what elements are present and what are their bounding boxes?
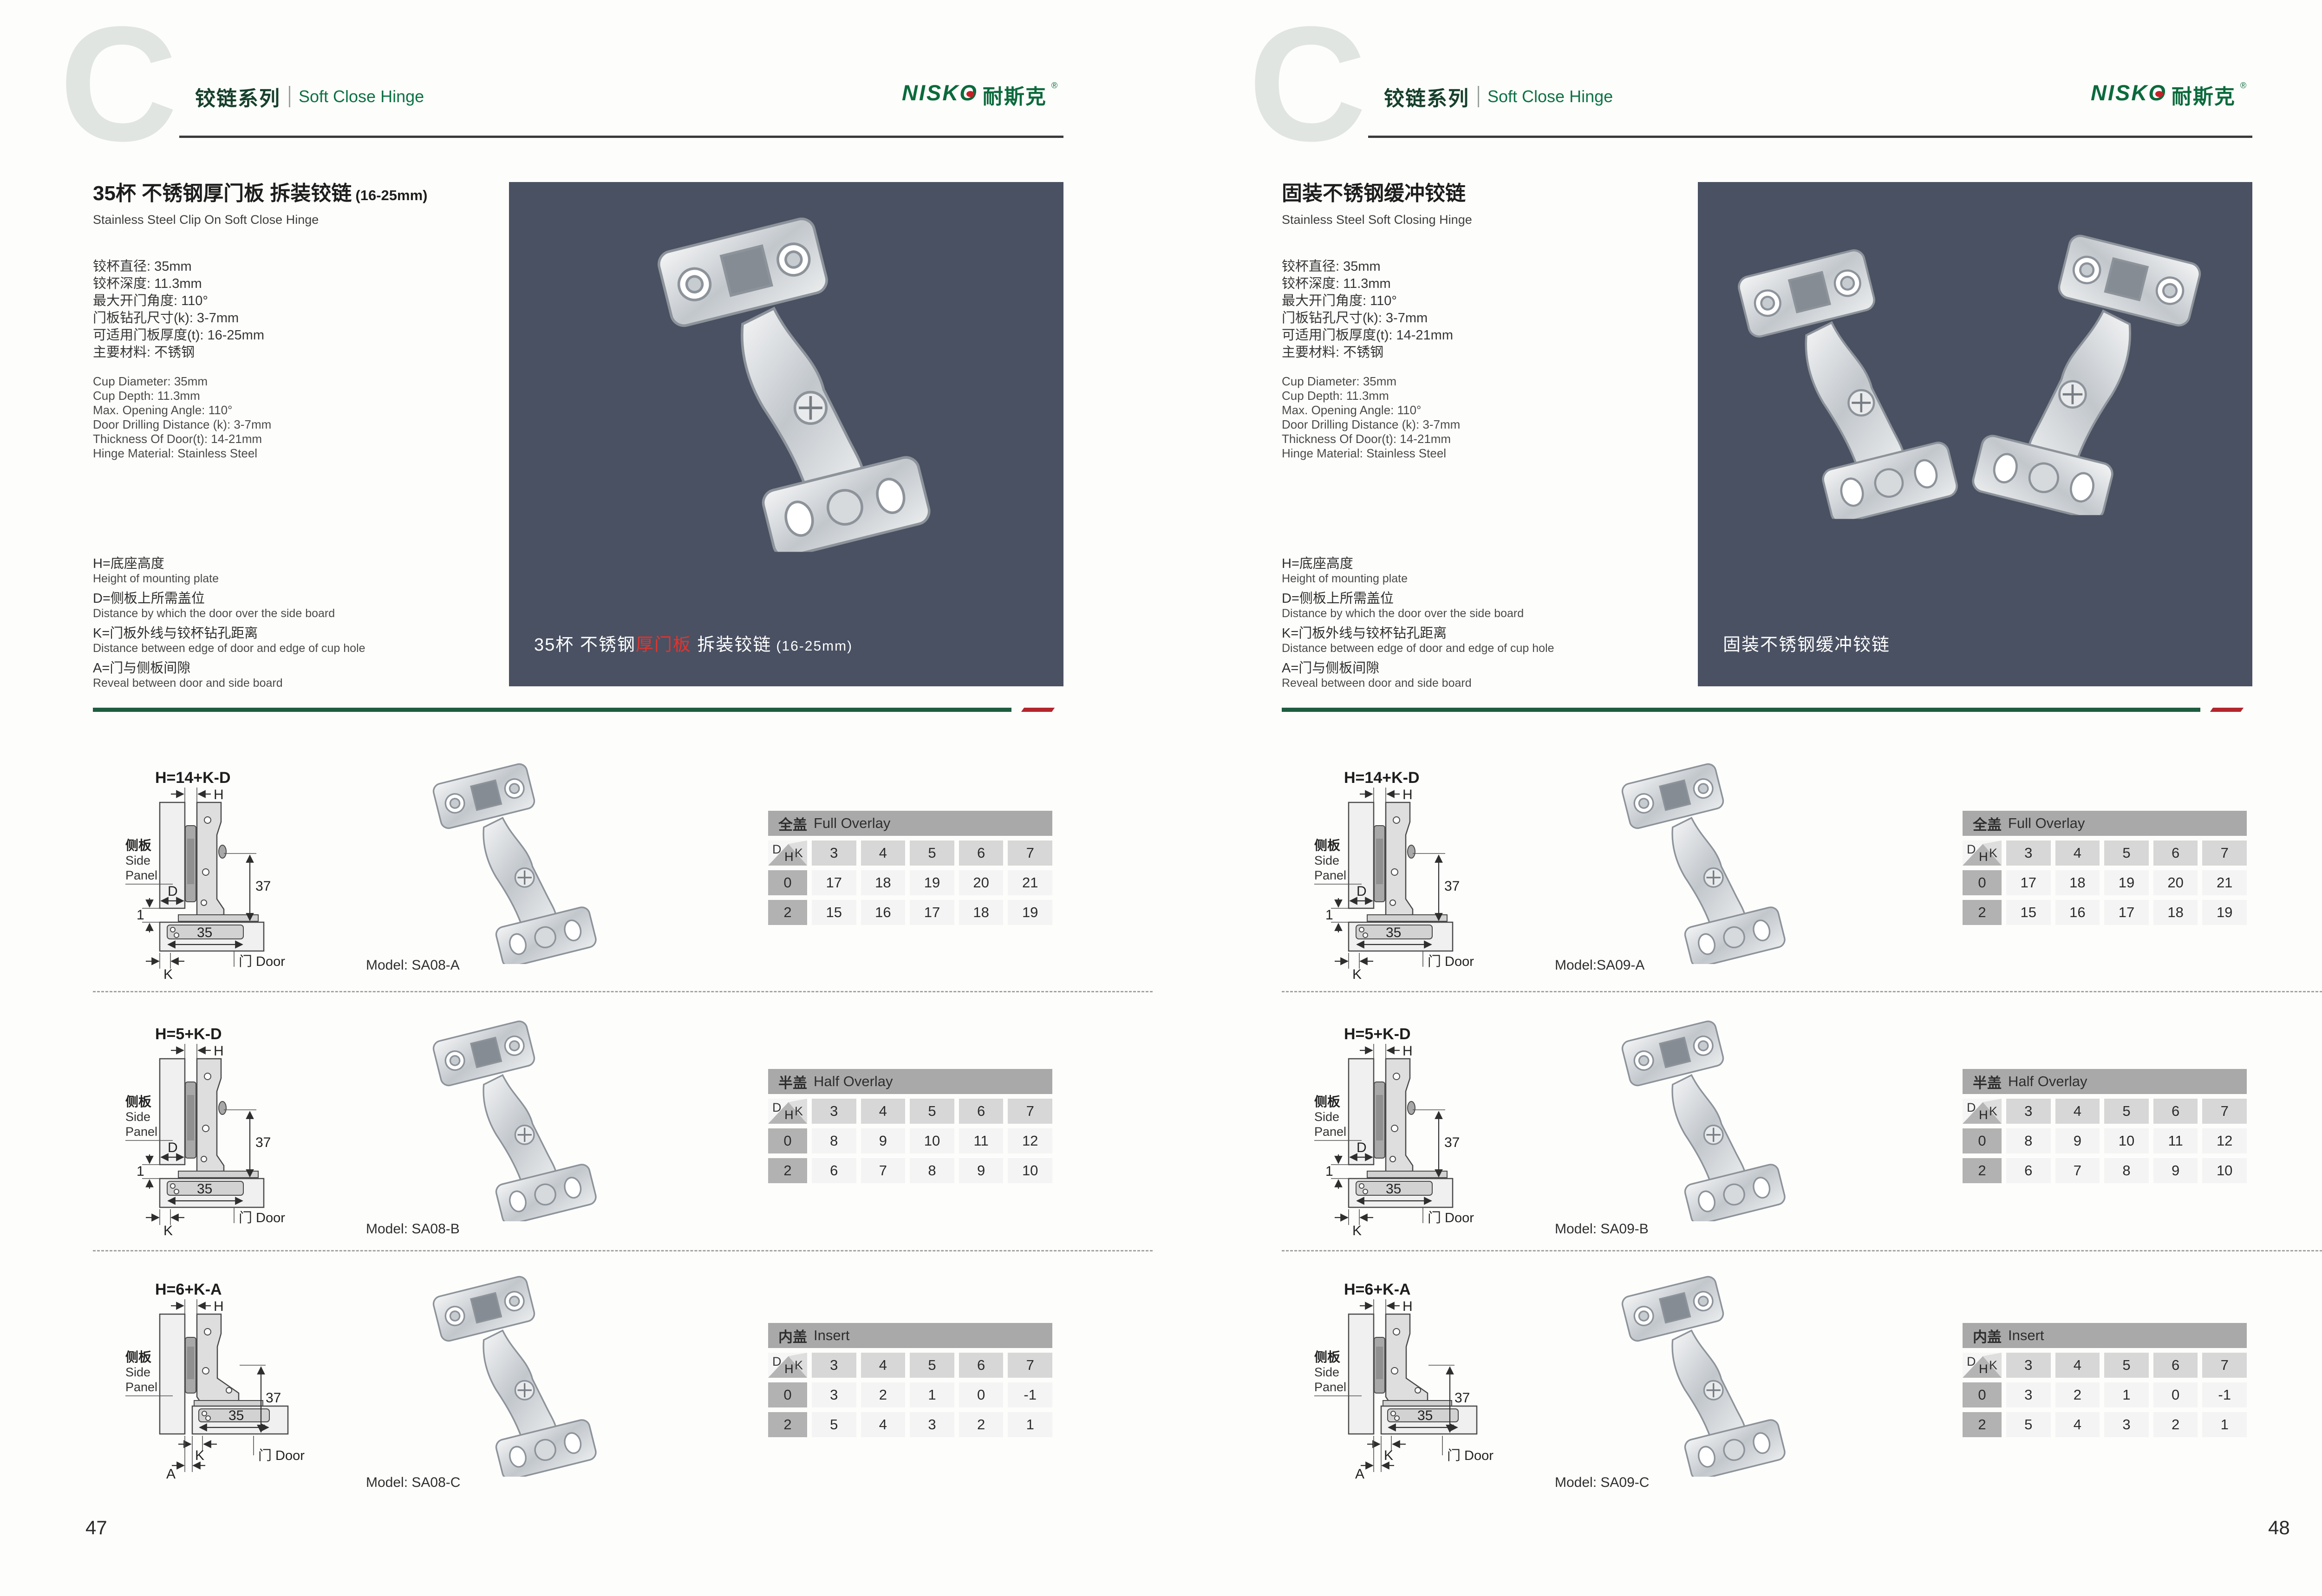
page-number: 47 [85, 1517, 107, 1539]
diagram-half-overlay: H=5+K-D [1312, 1018, 1572, 1241]
product-subtitle: Stainless Steel Clip On Soft Close Hinge [93, 213, 319, 227]
table-cell: 10 [1008, 1158, 1052, 1183]
table-col-header: 6 [2153, 1353, 2198, 1378]
specs-cn: 铰杯直径: 35mm铰杯深度: 11.3mm 最大开门角度: 110°门板钻孔尺… [1282, 258, 1453, 361]
diagram-formula: H=6+K-A [1344, 1281, 1411, 1298]
table-col-header: 5 [2104, 1099, 2149, 1124]
table-grid: DKH345670171819202121516171819 [1963, 840, 2247, 925]
table-row-header: 2 [1963, 1412, 2002, 1437]
table-cell: 7 [861, 1158, 906, 1183]
row-separator [93, 991, 1153, 992]
table-cell: 6 [2006, 1158, 2051, 1183]
hinge-photo-large [1967, 228, 2209, 516]
table-row-header: 0 [768, 1382, 807, 1407]
model-label: Model: SA08-A [366, 958, 460, 973]
table-col-header: 6 [2153, 1099, 2198, 1124]
table-cell: 17 [2104, 900, 2149, 925]
table-cell: 10 [2104, 1128, 2149, 1153]
table-title: 内盖Insert [768, 1323, 1052, 1348]
table-cell: 1 [2202, 1412, 2247, 1437]
table-cell: 9 [2153, 1158, 2198, 1183]
table-cell: 19 [2202, 900, 2247, 925]
series-title-en: Soft Close Hinge [1487, 87, 1613, 106]
table-cell: 20 [959, 870, 1004, 895]
table-cell: 21 [1008, 870, 1052, 895]
table-cell: 10 [2202, 1158, 2247, 1183]
brand-logo-cn: 耐斯克 [2172, 80, 2236, 110]
model-label: Model: SA09-B [1555, 1221, 1649, 1237]
table-cell: 18 [2055, 870, 2100, 895]
table-cell: 16 [861, 900, 906, 925]
table-title: 全盖Full Overlay [1963, 811, 2247, 836]
table-cell: 19 [910, 870, 954, 895]
table-cell: 11 [959, 1128, 1004, 1153]
table-row-header: 2 [1963, 900, 2002, 925]
table-cell: 9 [861, 1128, 906, 1153]
brand-logo-latin: NISKO [902, 80, 978, 105]
diagram-insert: H=6+K-A [124, 1273, 384, 1496]
table-row-header: 2 [768, 1412, 807, 1437]
specs-en: Cup Diameter: 35mmCup Depth: 11.3mm Max.… [93, 374, 271, 461]
photo-caption: 35杯 不锈钢厚门板 拆装铰链(16-25mm) [534, 630, 853, 656]
table-cell: 18 [959, 900, 1004, 925]
table-col-header: 7 [2202, 1353, 2247, 1378]
table-cell: 2 [2153, 1412, 2198, 1437]
hinge-photo-row [421, 1017, 607, 1221]
table-title: 内盖Insert [1963, 1323, 2247, 1348]
logo-red-dot-icon [966, 91, 974, 97]
page-header: 铰链系列 Soft Close Hinge [1384, 83, 1613, 111]
table-row-header: 0 [1963, 870, 2002, 895]
table-corner-cell: DKH [1963, 1353, 2002, 1378]
table-cell: 12 [1008, 1128, 1052, 1153]
table-cell: 6 [812, 1158, 856, 1183]
table-col-header: 4 [2055, 1099, 2100, 1124]
table-col-header: 7 [2202, 840, 2247, 866]
overlay-table-insert: 内盖InsertDKH3456703210-1254321 [1963, 1323, 2247, 1437]
table-corner-cell: DKH [1963, 1099, 2002, 1124]
table-cell: 2 [861, 1382, 906, 1407]
table-corner-cell: DKH [768, 840, 807, 866]
diagram-formula: H=5+K-D [155, 1025, 222, 1043]
table-cell: 8 [812, 1128, 856, 1153]
series-title-cn: 铰链系列 [195, 82, 280, 111]
watermark-letter: C [1248, 19, 1366, 150]
table-cell: 11 [2153, 1128, 2198, 1153]
table-cell: 3 [2104, 1412, 2149, 1437]
accent-divider-red [1021, 708, 1055, 712]
table-cell: 17 [812, 870, 856, 895]
table-cell: 7 [2055, 1158, 2100, 1183]
table-corner-cell: DKH [1963, 840, 2002, 866]
table-cell: 8 [2006, 1128, 2051, 1153]
table-cell: 2 [2055, 1382, 2100, 1407]
table-row-header: 0 [768, 1128, 807, 1153]
table-cell: 21 [2202, 870, 2247, 895]
table-grid: DKH345670891011122678910 [768, 1099, 1052, 1183]
table-col-header: 4 [861, 1353, 906, 1378]
table-col-header: 3 [812, 1099, 856, 1124]
accent-divider-red [2210, 708, 2244, 712]
table-grid: DKH3456703210-1254321 [768, 1353, 1052, 1437]
table-col-header: 6 [959, 840, 1004, 866]
table-corner-cell: DKH [768, 1099, 807, 1124]
table-title: 半盖Half Overlay [768, 1069, 1052, 1094]
table-col-header: 5 [2104, 840, 2149, 866]
table-cell: 3 [812, 1382, 856, 1407]
table-cell: -1 [1008, 1382, 1052, 1407]
catalog-spread: C 铰链系列 Soft Close Hinge NISKO 耐斯克 ® 35杯 … [0, 0, 2322, 1596]
row-separator [1282, 1250, 2322, 1251]
model-label: Model:SA09-A [1555, 958, 1644, 973]
table-col-header: 4 [2055, 840, 2100, 866]
photo-caption: 固装不锈钢缓冲铰链 [1723, 630, 1895, 656]
table-cell: 19 [2104, 870, 2149, 895]
table-col-header: 3 [812, 840, 856, 866]
table-cell: 9 [959, 1158, 1004, 1183]
table-cell: 0 [2153, 1382, 2198, 1407]
table-col-header: 7 [1008, 1353, 1052, 1378]
table-cell: 9 [2055, 1128, 2100, 1153]
table-cell: 19 [1008, 900, 1052, 925]
table-row-header: 0 [768, 870, 807, 895]
table-col-header: 6 [959, 1099, 1004, 1124]
table-row-header: 2 [768, 1158, 807, 1183]
table-row-header: 0 [1963, 1128, 2002, 1153]
table-title: 全盖Full Overlay [768, 811, 1052, 836]
hinge-photo-row [421, 760, 607, 964]
hinge-photo-large [1730, 242, 1963, 521]
table-cell: 17 [910, 900, 954, 925]
table-cell: 4 [2055, 1412, 2100, 1437]
table-cell: 5 [2006, 1412, 2051, 1437]
table-col-header: 5 [910, 1353, 954, 1378]
table-cell: 10 [910, 1128, 954, 1153]
registered-mark: ® [2240, 81, 2246, 91]
accent-divider-green [1282, 708, 2200, 712]
product-photo: 固装不锈钢缓冲铰链 [1698, 182, 2252, 686]
table-col-header: 7 [1008, 840, 1052, 866]
hinge-photo-row [1610, 1017, 1795, 1221]
table-col-header: 3 [2006, 1099, 2051, 1124]
diagram-full-overlay: H=14+K-D [124, 762, 384, 984]
table-cell: 4 [861, 1412, 906, 1437]
table-col-header: 4 [861, 840, 906, 866]
table-col-header: 5 [2104, 1353, 2149, 1378]
table-cell: 18 [2153, 900, 2198, 925]
table-grid: DKH345670891011122678910 [1963, 1099, 2247, 1183]
table-cell: 16 [2055, 900, 2100, 925]
table-col-header: 6 [2153, 840, 2198, 866]
diagram-formula: H=14+K-D [155, 769, 231, 787]
hinge-photo-row [421, 1272, 607, 1477]
table-row-header: 0 [1963, 1382, 2002, 1407]
table-cell: 8 [910, 1158, 954, 1183]
diagram-formula: H=6+K-A [155, 1281, 222, 1298]
table-title: 半盖Half Overlay [1963, 1069, 2247, 1094]
overlay-table-full: 全盖Full OverlayDKH34567017181920212151617… [1963, 811, 2247, 925]
page-number: 48 [2268, 1517, 2290, 1539]
diagram-insert: H=6+K-A [1312, 1273, 1572, 1496]
table-cell: 17 [2006, 870, 2051, 895]
table-cell: 0 [959, 1382, 1004, 1407]
model-label: Model: SA08-B [366, 1221, 460, 1237]
hinge-photo-row [1610, 760, 1795, 964]
overlay-table-half: 半盖Half OverlayDKH345670891011122678910 [768, 1069, 1052, 1183]
overlay-table-insert: 内盖InsertDKH3456703210-1254321 [768, 1323, 1052, 1437]
brand-logo-cn: 耐斯克 [983, 80, 1047, 110]
table-col-header: 7 [1008, 1099, 1052, 1124]
table-cell: 3 [2006, 1382, 2051, 1407]
dimension-legend: H=底座高度Height of mounting plate D=侧板上所需盖位… [1282, 555, 1554, 695]
diagram-half-overlay: H=5+K-D [124, 1018, 384, 1241]
table-cell: 8 [2104, 1158, 2149, 1183]
table-cell: 1 [910, 1382, 954, 1407]
table-cell: -1 [2202, 1382, 2247, 1407]
brand-logo: NISKO 耐斯克 ® [2091, 80, 2246, 110]
table-grid: DKH3456703210-1254321 [1963, 1353, 2247, 1437]
diagram-full-overlay: H=14+K-D [1312, 762, 1572, 984]
overlay-table-half: 半盖Half OverlayDKH345670891011122678910 [1963, 1069, 2247, 1183]
table-col-header: 3 [2006, 840, 2051, 866]
brand-logo: NISKO 耐斯克 ® [902, 80, 1057, 110]
table-cell: 15 [812, 900, 856, 925]
watermark-letter: C [59, 19, 177, 150]
table-cell: 1 [2104, 1382, 2149, 1407]
product-title: 35杯 不锈钢厚门板 拆装铰链(16-25mm) [93, 176, 427, 206]
table-col-header: 5 [910, 1099, 954, 1124]
table-cell: 18 [861, 870, 906, 895]
diagram-formula: H=5+K-D [1344, 1025, 1411, 1043]
registered-mark: ® [1051, 81, 1057, 91]
page-header: 铰链系列 Soft Close Hinge [195, 83, 424, 111]
specs-en: Cup Diameter: 35mmCup Depth: 11.3mm Max.… [1282, 374, 1460, 461]
table-cell: 20 [2153, 870, 2198, 895]
table-col-header: 4 [861, 1099, 906, 1124]
brand-logo-latin: NISKO [2091, 80, 2167, 105]
logo-red-dot-icon [2155, 91, 2163, 97]
series-title-cn: 铰链系列 [1384, 82, 1469, 111]
table-grid: DKH345670171819202121516171819 [768, 840, 1052, 925]
table-cell: 5 [812, 1412, 856, 1437]
table-col-header: 3 [812, 1353, 856, 1378]
table-cell: 12 [2202, 1128, 2247, 1153]
product-subtitle: Stainless Steel Soft Closing Hinge [1282, 213, 1472, 227]
table-cell: 2 [959, 1412, 1004, 1437]
overlay-table-full: 全盖Full OverlayDKH34567017181920212151617… [768, 811, 1052, 925]
hinge-photo-row [1610, 1272, 1795, 1477]
product-title: 固装不锈钢缓冲铰链 [1282, 176, 1469, 206]
table-row-header: 2 [1963, 1158, 2002, 1183]
hinge-photo-large [648, 210, 936, 554]
row-separator [1282, 991, 2322, 992]
header-rule [179, 136, 1063, 138]
model-label: Model: SA08-C [366, 1475, 460, 1491]
dimension-legend: H=底座高度Height of mounting plate D=侧板上所需盖位… [93, 555, 365, 695]
diagram-formula: H=14+K-D [1344, 769, 1420, 787]
table-col-header: 7 [2202, 1099, 2247, 1124]
table-col-header: 4 [2055, 1353, 2100, 1378]
header-separator [289, 86, 290, 107]
table-cell: 3 [910, 1412, 954, 1437]
table-corner-cell: DKH [768, 1353, 807, 1378]
header-rule [1368, 136, 2252, 138]
table-col-header: 5 [910, 840, 954, 866]
row-separator [93, 1250, 1153, 1251]
table-col-header: 3 [2006, 1353, 2051, 1378]
table-row-header: 2 [768, 900, 807, 925]
product-photo: 35杯 不锈钢厚门板 拆装铰链(16-25mm) [509, 182, 1063, 686]
table-col-header: 6 [959, 1353, 1004, 1378]
specs-cn: 铰杯直径: 35mm铰杯深度: 11.3mm 最大开门角度: 110°门板钻孔尺… [93, 258, 264, 361]
table-cell: 15 [2006, 900, 2051, 925]
table-cell: 1 [1008, 1412, 1052, 1437]
model-label: Model: SA09-C [1555, 1475, 1649, 1491]
series-title-en: Soft Close Hinge [299, 87, 424, 106]
header-separator [1478, 86, 1479, 107]
accent-divider-green [93, 708, 1011, 712]
